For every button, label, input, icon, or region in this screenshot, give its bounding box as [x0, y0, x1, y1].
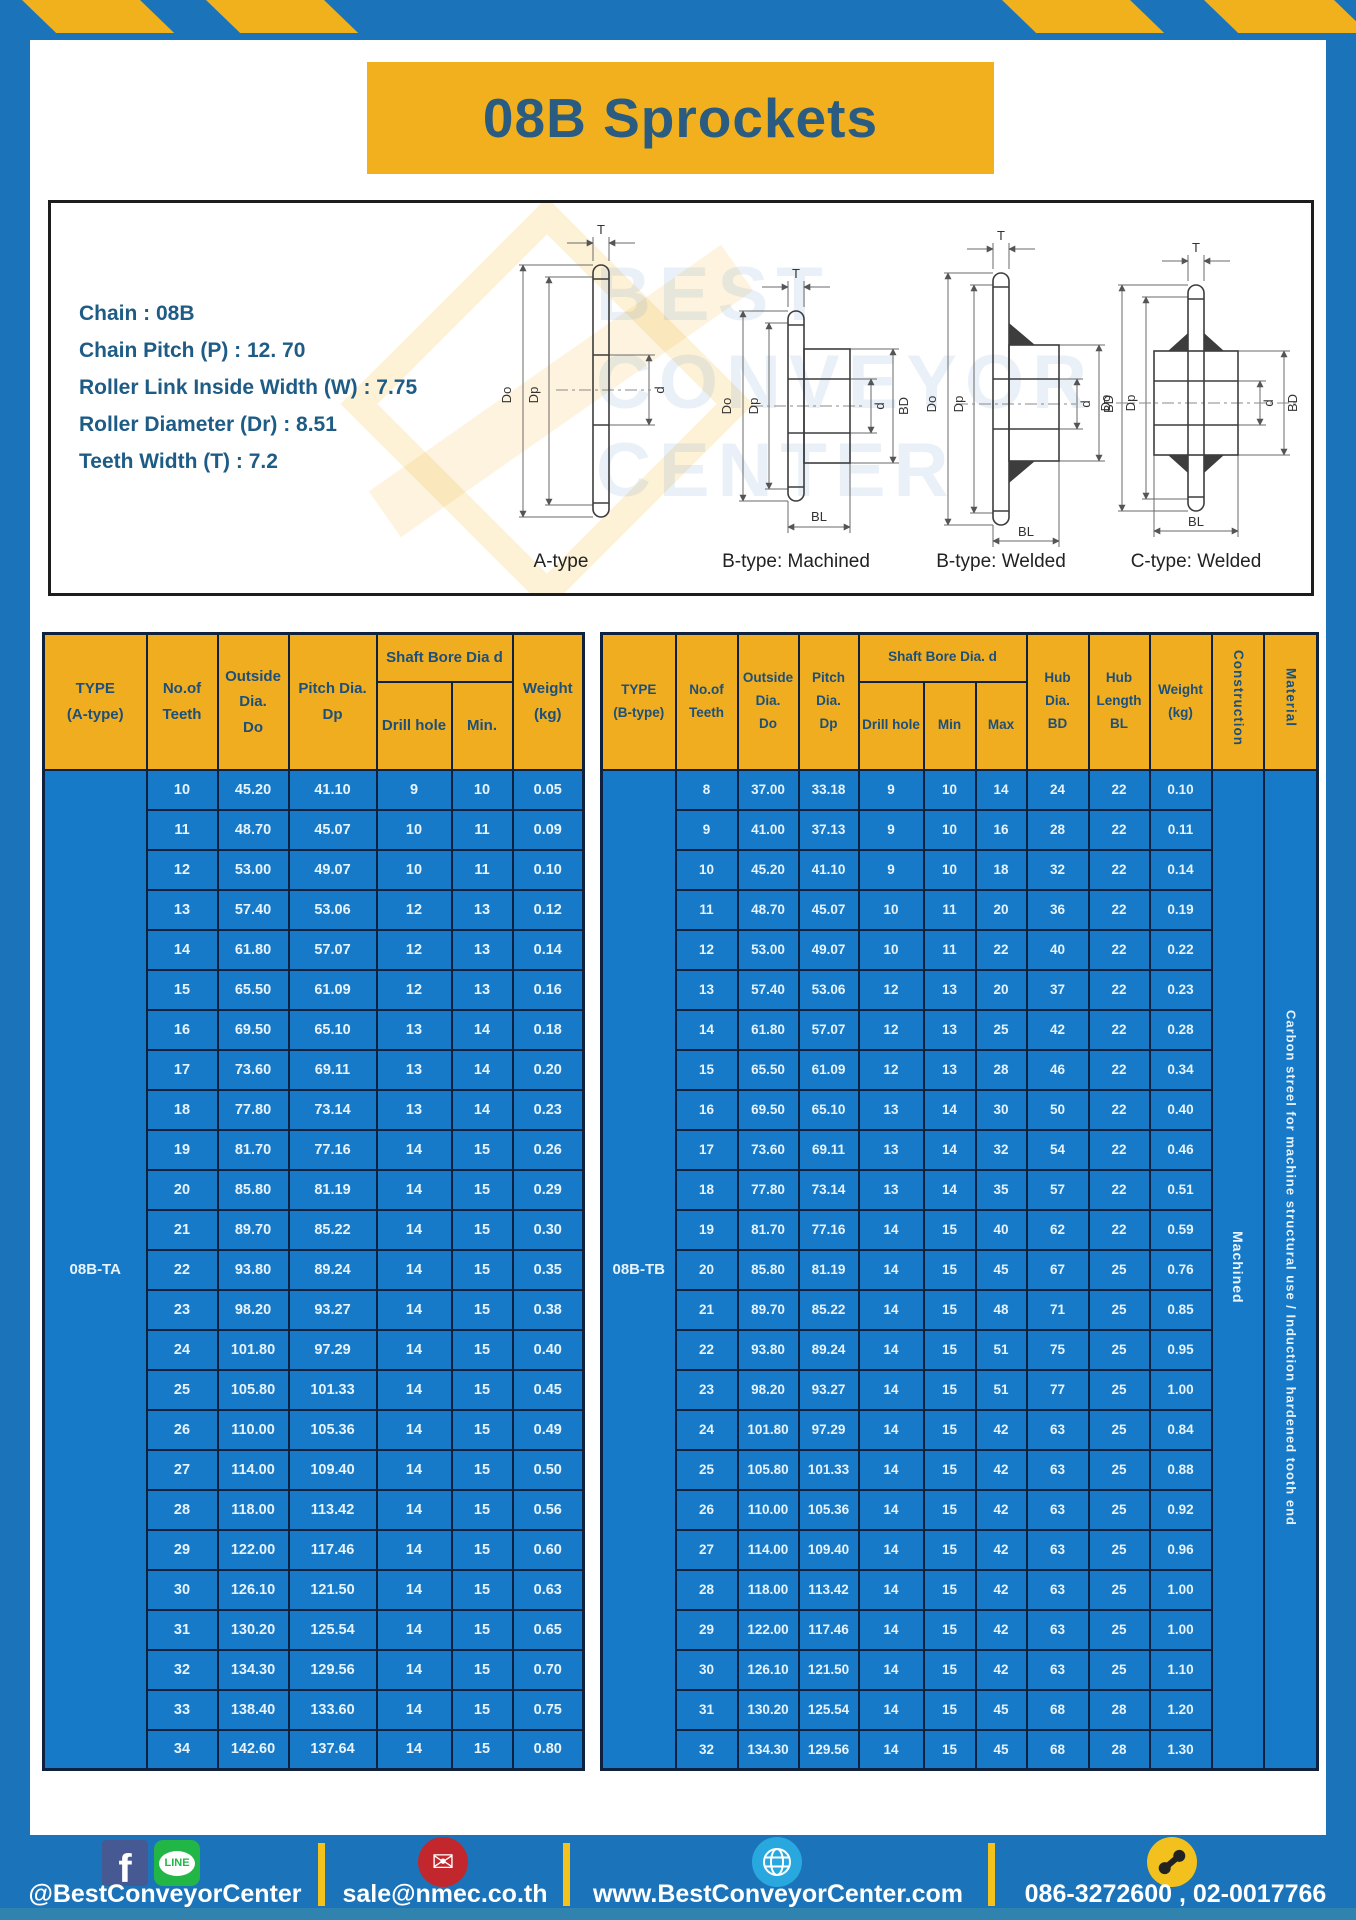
- table-cell: 25: [1089, 1250, 1150, 1290]
- table-cell: 109.40: [799, 1530, 859, 1570]
- table-row: 941.0037.139101628220.11: [602, 810, 1318, 850]
- table-cell: 22: [976, 930, 1027, 970]
- a-type-drawing: Do Dp T d: [499, 222, 667, 517]
- footer-divider: [988, 1843, 995, 1906]
- construction-cell: Machined: [1212, 770, 1264, 1770]
- table-cell: 65.10: [799, 1090, 859, 1130]
- table-cell: 54: [1027, 1130, 1089, 1170]
- table-cell: 18: [676, 1170, 738, 1210]
- table-cell: 9: [859, 770, 924, 810]
- banner-stripe: [1204, 0, 1356, 33]
- table-cell: 16: [676, 1090, 738, 1130]
- table-cell: 13: [859, 1170, 924, 1210]
- table-cell: 0.70: [513, 1650, 584, 1690]
- table-cell: 15: [452, 1450, 513, 1490]
- table-cell: 0.88: [1150, 1450, 1212, 1490]
- table-cell: 49.07: [289, 850, 377, 890]
- table-cell: 14: [859, 1290, 924, 1330]
- dim-label-dp: Dp: [526, 387, 541, 404]
- col-header-weight: Weight (kg): [513, 634, 584, 770]
- table-row: 24101.8097.2914154263250.84: [602, 1410, 1318, 1450]
- col-header-pitch: Pitch Dia. Dp: [289, 634, 377, 770]
- dim-label-dp: Dp: [746, 398, 761, 415]
- table-cell: 10: [859, 890, 924, 930]
- table-cell: 28: [1027, 810, 1089, 850]
- table-cell: 0.30: [513, 1210, 584, 1250]
- table-cell: 45.07: [799, 890, 859, 930]
- table-cell: 13: [924, 1050, 976, 1090]
- table-cell: 105.36: [289, 1410, 377, 1450]
- table-cell: 57.07: [799, 1010, 859, 1050]
- table-cell: 15: [924, 1290, 976, 1330]
- table-cell: 13: [147, 890, 218, 930]
- table-cell: 0.96: [1150, 1530, 1212, 1570]
- table-cell: 14: [377, 1370, 452, 1410]
- table-cell: 12: [147, 850, 218, 890]
- table-cell: 28: [676, 1570, 738, 1610]
- table-cell: 0.49: [513, 1410, 584, 1450]
- footer-divider: [563, 1843, 570, 1906]
- table-cell: 14: [859, 1250, 924, 1290]
- table-cell: 85.80: [218, 1170, 289, 1210]
- table-row: 2293.8089.2414155175250.95: [602, 1330, 1318, 1370]
- table-cell: 10: [452, 770, 513, 810]
- table-cell: 23: [147, 1290, 218, 1330]
- table-cell: 121.50: [799, 1650, 859, 1690]
- table-cell: 15: [924, 1370, 976, 1410]
- table-cell: 14: [377, 1730, 452, 1770]
- dim-label-d: d: [652, 386, 667, 393]
- table-cell: 10: [676, 850, 738, 890]
- table-cell: 22: [1089, 970, 1150, 1010]
- table-cell: 0.40: [513, 1330, 584, 1370]
- table-cell: 25: [976, 1010, 1027, 1050]
- table-cell: 22: [1089, 1130, 1150, 1170]
- table-cell: 12: [377, 890, 452, 930]
- table-cell: 16: [976, 810, 1027, 850]
- content-area: 08B Sprockets BEST CONVEYOR CENTER Chain…: [30, 40, 1326, 1835]
- table-cell: 0.46: [1150, 1130, 1212, 1170]
- table-cell: 14: [377, 1650, 452, 1690]
- table-cell: 21: [147, 1210, 218, 1250]
- table-cell: 10: [924, 770, 976, 810]
- table-cell: 77.16: [289, 1130, 377, 1170]
- table-cell: 25: [1089, 1530, 1150, 1570]
- table-cell: 0.95: [1150, 1330, 1212, 1370]
- table-cell: 0.65: [513, 1610, 584, 1650]
- table-cell: 25: [1089, 1570, 1150, 1610]
- table-cell: 14: [377, 1330, 452, 1370]
- table-cell: 0.75: [513, 1690, 584, 1730]
- table-cell: 14: [924, 1090, 976, 1130]
- table-cell: 57.07: [289, 930, 377, 970]
- table-cell: 19: [147, 1130, 218, 1170]
- table-cell: 13: [452, 970, 513, 1010]
- table-cell: 122.00: [738, 1610, 799, 1650]
- table-cell: 14: [859, 1650, 924, 1690]
- table-cell: 28: [976, 1050, 1027, 1090]
- table-cell: 105.80: [218, 1370, 289, 1410]
- table-cell: 9: [377, 770, 452, 810]
- table-cell: 0.85: [1150, 1290, 1212, 1330]
- table-cell: 109.40: [289, 1450, 377, 1490]
- table-cell: 114.00: [218, 1450, 289, 1490]
- table-cell: 14: [377, 1170, 452, 1210]
- table-cell: 41.10: [289, 770, 377, 810]
- table-cell: 14: [377, 1450, 452, 1490]
- table-cell: 129.56: [799, 1730, 859, 1770]
- material-value: Carbon streel for machine structural use…: [1283, 1010, 1297, 1526]
- table-cell: 50: [1027, 1090, 1089, 1130]
- page-title: 08B Sprockets: [483, 86, 878, 150]
- table-cell: 75: [1027, 1330, 1089, 1370]
- table-cell: 105.80: [738, 1450, 799, 1490]
- table-cell: 0.92: [1150, 1490, 1212, 1530]
- table-cell: 10: [859, 930, 924, 970]
- table-cell: 26: [147, 1410, 218, 1450]
- table-cell: 98.20: [218, 1290, 289, 1330]
- table-cell: 11: [452, 850, 513, 890]
- table-cell: 25: [1089, 1290, 1150, 1330]
- table-cell: 1.20: [1150, 1690, 1212, 1730]
- table-cell: 15: [452, 1490, 513, 1530]
- table-cell: 0.23: [513, 1090, 584, 1130]
- diagram-label-a-type: A-type: [451, 551, 671, 573]
- table-cell: 89.70: [218, 1210, 289, 1250]
- table-cell: 117.46: [799, 1610, 859, 1650]
- table-cell: 15: [452, 1650, 513, 1690]
- table-cell: 15: [452, 1130, 513, 1170]
- table-cell: 15: [452, 1250, 513, 1290]
- table-cell: 28: [1089, 1690, 1150, 1730]
- table-cell: 28: [1089, 1730, 1150, 1770]
- table-cell: 24: [676, 1410, 738, 1450]
- dim-label-d: d: [872, 402, 887, 409]
- table-cell: 40: [1027, 930, 1089, 970]
- spec-line: Roller Link Inside Width (W) : 7.75: [79, 369, 417, 406]
- table-cell: 11: [147, 810, 218, 850]
- table-row: 1253.0049.0710112240220.22: [602, 930, 1318, 970]
- table-cell: 63: [1027, 1650, 1089, 1690]
- table-cell: 0.35: [513, 1250, 584, 1290]
- spec-line: Chain : 08B: [79, 295, 417, 332]
- material-header-text: Material: [1283, 668, 1298, 727]
- table-cell: 0.19: [1150, 890, 1212, 930]
- top-banner: [0, 0, 1356, 40]
- table-cell: 15: [452, 1690, 513, 1730]
- table-cell: 63: [1027, 1570, 1089, 1610]
- col-header-weight: Weight (kg): [1150, 634, 1212, 770]
- table-cell: 114.00: [738, 1530, 799, 1570]
- table-row: 2085.8081.1914154567250.76: [602, 1250, 1318, 1290]
- table-cell: 61.09: [289, 970, 377, 1010]
- table-cell: 0.23: [1150, 970, 1212, 1010]
- table-cell: 77: [1027, 1370, 1089, 1410]
- table-row: 32134.30129.5614154568281.30: [602, 1730, 1318, 1770]
- table-cell: 14: [976, 770, 1027, 810]
- table-cell: 42: [976, 1650, 1027, 1690]
- footer-divider: [318, 1843, 325, 1906]
- table-cell: 97.29: [799, 1410, 859, 1450]
- c-type-welded-drawing: Do Dp T d BD BL: [1098, 240, 1300, 537]
- table-cell: 14: [859, 1610, 924, 1650]
- table-cell: 32: [1027, 850, 1089, 890]
- table-cell: 1.00: [1150, 1370, 1212, 1410]
- table-cell: 10: [924, 810, 976, 850]
- table-cell: 53.06: [799, 970, 859, 1010]
- dim-label-dp: Dp: [951, 396, 966, 413]
- table-cell: 30: [147, 1570, 218, 1610]
- table-cell: 118.00: [218, 1490, 289, 1530]
- email-address: sale@nmec.co.th: [330, 1880, 560, 1909]
- table-cell: 73.14: [799, 1170, 859, 1210]
- table-cell: 32: [676, 1730, 738, 1770]
- table-cell: 22: [1089, 850, 1150, 890]
- table-cell: 25: [1089, 1610, 1150, 1650]
- table-cell: 129.56: [289, 1650, 377, 1690]
- table-cell: 13: [859, 1130, 924, 1170]
- table-cell: 20: [976, 890, 1027, 930]
- col-header-shaft-bore: Shaft Bore Dia d: [377, 634, 513, 682]
- table-cell: 0.10: [513, 850, 584, 890]
- dim-label-bl: BL: [811, 509, 827, 524]
- table-cell: 8: [676, 770, 738, 810]
- diagram-label-b-type-welded: B-type: Welded: [891, 551, 1111, 573]
- table-row: 27114.00109.4014154263250.96: [602, 1530, 1318, 1570]
- table-cell: 1.10: [1150, 1650, 1212, 1690]
- table-row: 31130.20125.5414154568281.20: [602, 1690, 1318, 1730]
- table-cell: 12: [676, 930, 738, 970]
- table-cell: 22: [147, 1250, 218, 1290]
- dim-label-t: T: [997, 228, 1005, 243]
- table-cell: 14: [377, 1410, 452, 1450]
- construction-value: Machined: [1230, 1231, 1245, 1304]
- table-cell: 134.30: [218, 1650, 289, 1690]
- table-cell: 113.42: [799, 1570, 859, 1610]
- table-cell: 101.80: [218, 1330, 289, 1370]
- table-cell: 10: [924, 850, 976, 890]
- table-cell: 48.70: [738, 890, 799, 930]
- table-row: 28118.00113.4214154263251.00: [602, 1570, 1318, 1610]
- table-cell: 15: [924, 1730, 976, 1770]
- table-cell: 15: [924, 1250, 976, 1290]
- table-cell: 27: [147, 1450, 218, 1490]
- table-cell: 15: [147, 970, 218, 1010]
- table-row: 30126.10121.5014154263251.10: [602, 1650, 1318, 1690]
- table-row: 1981.7077.1614154062220.59: [602, 1210, 1318, 1250]
- table-cell: 0.14: [1150, 850, 1212, 890]
- table-cell: 15: [924, 1330, 976, 1370]
- table-cell: 142.60: [218, 1730, 289, 1770]
- spec-line: Roller Diameter (Dr) : 8.51: [79, 406, 417, 443]
- table-cell: 62: [1027, 1210, 1089, 1250]
- table-cell: 0.63: [513, 1570, 584, 1610]
- b-type-table: TYPE (B-type) No.of Teeth Outside Dia. D…: [600, 632, 1319, 1771]
- table-cell: 34: [147, 1730, 218, 1770]
- col-header-type: TYPE (B-type): [602, 634, 676, 770]
- b-type-welded-drawing: Do Dp T d BD BL: [924, 228, 1116, 547]
- table-cell: 134.30: [738, 1730, 799, 1770]
- table-cell: 15: [452, 1210, 513, 1250]
- table-row: 1877.8073.1413143557220.51: [602, 1170, 1318, 1210]
- title-banner: 08B Sprockets: [367, 62, 994, 174]
- table-cell: 81.70: [218, 1130, 289, 1170]
- table-cell: 14: [859, 1530, 924, 1570]
- table-cell: 15: [452, 1370, 513, 1410]
- dim-label-t: T: [597, 222, 605, 237]
- col-header-drill-hole: Drill hole: [377, 682, 452, 770]
- table-cell: 68: [1027, 1730, 1089, 1770]
- table-cell: 63: [1027, 1410, 1089, 1450]
- table-cell: 14: [377, 1290, 452, 1330]
- table-cell: 42: [976, 1570, 1027, 1610]
- construction-header-text: Construction: [1230, 650, 1245, 746]
- banner-stripe: [206, 0, 358, 33]
- table-cell: 12: [859, 970, 924, 1010]
- table-cell: 0.76: [1150, 1250, 1212, 1290]
- table-cell: 25: [1089, 1450, 1150, 1490]
- table-cell: 12: [859, 1010, 924, 1050]
- table-cell: 14: [859, 1450, 924, 1490]
- diagram-label-c-type-welded: C-type: Welded: [1086, 551, 1306, 573]
- chain-specs: Chain : 08B Chain Pitch (P) : 12. 70 Rol…: [79, 295, 417, 480]
- spec-line: Teeth Width (T) : 7.2: [79, 443, 417, 480]
- table-cell: 93.80: [218, 1250, 289, 1290]
- footer-bottom-strip: [0, 1908, 1356, 1920]
- table-cell: 33.18: [799, 770, 859, 810]
- table-cell: 13: [924, 1010, 976, 1050]
- table-cell: 14: [859, 1210, 924, 1250]
- table-cell: 15: [452, 1530, 513, 1570]
- table-cell: 67: [1027, 1250, 1089, 1290]
- table-cell: 48.70: [218, 810, 289, 850]
- table-cell: 12: [377, 970, 452, 1010]
- table-cell: 14: [676, 1010, 738, 1050]
- table-cell: 14: [452, 1050, 513, 1090]
- table-cell: 22: [1089, 1090, 1150, 1130]
- table-cell: 32: [147, 1650, 218, 1690]
- col-header-outside: Outside Dia. Do: [218, 634, 289, 770]
- table-cell: 11: [452, 810, 513, 850]
- table-cell: 36: [1027, 890, 1089, 930]
- table-cell: 13: [377, 1010, 452, 1050]
- table-cell: 11: [676, 890, 738, 930]
- table-row: 08B-TA1045.2041.109100.05: [44, 770, 584, 810]
- table-row: 2189.7085.2214154871250.85: [602, 1290, 1318, 1330]
- table-cell: 69.11: [289, 1050, 377, 1090]
- table-cell: 20: [147, 1170, 218, 1210]
- table-cell: 101.80: [738, 1410, 799, 1450]
- table-cell: 14: [859, 1490, 924, 1530]
- table-cell: 28: [147, 1490, 218, 1530]
- table-row: 1773.6069.1113143254220.46: [602, 1130, 1318, 1170]
- table-cell: 37.00: [738, 770, 799, 810]
- table-cell: 13: [377, 1090, 452, 1130]
- diagram-panel: BEST CONVEYOR CENTER Chain : 08B Chain P…: [48, 200, 1314, 596]
- table-cell: 118.00: [738, 1570, 799, 1610]
- table-cell: 0.34: [1150, 1050, 1212, 1090]
- table-cell: 15: [924, 1530, 976, 1570]
- table-cell: 15: [676, 1050, 738, 1090]
- table-cell: 22: [1089, 810, 1150, 850]
- dim-label-d: d: [1261, 399, 1276, 406]
- table-cell: 0.22: [1150, 930, 1212, 970]
- table-cell: 45: [976, 1250, 1027, 1290]
- table-cell: 125.54: [799, 1690, 859, 1730]
- table-cell: 22: [1089, 1050, 1150, 1090]
- table-cell: 81.19: [799, 1250, 859, 1290]
- banner-stripe: [22, 0, 174, 33]
- table-cell: 15: [452, 1730, 513, 1770]
- table-cell: 0.80: [513, 1730, 584, 1770]
- table-cell: 14: [377, 1530, 452, 1570]
- table-cell: 13: [452, 890, 513, 930]
- table-cell: 57.40: [218, 890, 289, 930]
- website-url: www.BestConveyorCenter.com: [578, 1880, 978, 1909]
- table-cell: 14: [377, 1210, 452, 1250]
- table-cell: 15: [924, 1450, 976, 1490]
- table-cell: 130.20: [218, 1610, 289, 1650]
- table-cell: 25: [676, 1450, 738, 1490]
- table-cell: 37: [1027, 970, 1089, 1010]
- table-cell: 0.29: [513, 1170, 584, 1210]
- table-cell: 0.12: [513, 890, 584, 930]
- dim-label-do: Do: [719, 398, 734, 415]
- table-cell: 19: [676, 1210, 738, 1250]
- col-header-type: TYPE (A-type): [44, 634, 147, 770]
- a-type-table-wrap: TYPE (A-type) No.of Teeth Outside Dia. D…: [42, 632, 585, 1771]
- table-row: 1669.5065.1013143050220.40: [602, 1090, 1318, 1130]
- table-cell: 77.16: [799, 1210, 859, 1250]
- table-cell: 14: [859, 1570, 924, 1610]
- social-handle: @BestConveyorCenter: [20, 1880, 310, 1909]
- table-cell: 22: [1089, 770, 1150, 810]
- table-cell: 13: [924, 970, 976, 1010]
- table-cell: 0.20: [513, 1050, 584, 1090]
- table-cell: 10: [377, 850, 452, 890]
- table-cell: 31: [676, 1690, 738, 1730]
- table-cell: 42: [976, 1490, 1027, 1530]
- table-cell: 0.18: [513, 1010, 584, 1050]
- table-cell: 61.80: [738, 1010, 799, 1050]
- table-row: 26110.00105.3614154263250.92: [602, 1490, 1318, 1530]
- material-cell: Carbon streel for machine structural use…: [1264, 770, 1318, 1770]
- table-cell: 35: [976, 1170, 1027, 1210]
- table-cell: 130.20: [738, 1690, 799, 1730]
- diagram-label-b-type-machined: B-type: Machined: [686, 551, 906, 573]
- dim-label-d: d: [1078, 400, 1093, 407]
- table-cell: 14: [924, 1130, 976, 1170]
- table-cell: 69.11: [799, 1130, 859, 1170]
- table-cell: 85.22: [799, 1290, 859, 1330]
- table-cell: 89.24: [289, 1250, 377, 1290]
- table-cell: 22: [676, 1330, 738, 1370]
- table-cell: 27: [676, 1530, 738, 1570]
- table-cell: 0.56: [513, 1490, 584, 1530]
- table-cell: 45: [976, 1690, 1027, 1730]
- table-cell: 14: [452, 1090, 513, 1130]
- table-cell: 10: [377, 810, 452, 850]
- type-label: 08B-TB: [602, 770, 676, 1770]
- table-cell: 37.13: [799, 810, 859, 850]
- table-cell: 9: [859, 850, 924, 890]
- table-cell: 25: [147, 1370, 218, 1410]
- a-type-table: TYPE (A-type) No.of Teeth Outside Dia. D…: [42, 632, 585, 1771]
- table-cell: 125.54: [289, 1610, 377, 1650]
- table-cell: 42: [976, 1410, 1027, 1450]
- table-cell: 137.64: [289, 1730, 377, 1770]
- table-cell: 117.46: [289, 1530, 377, 1570]
